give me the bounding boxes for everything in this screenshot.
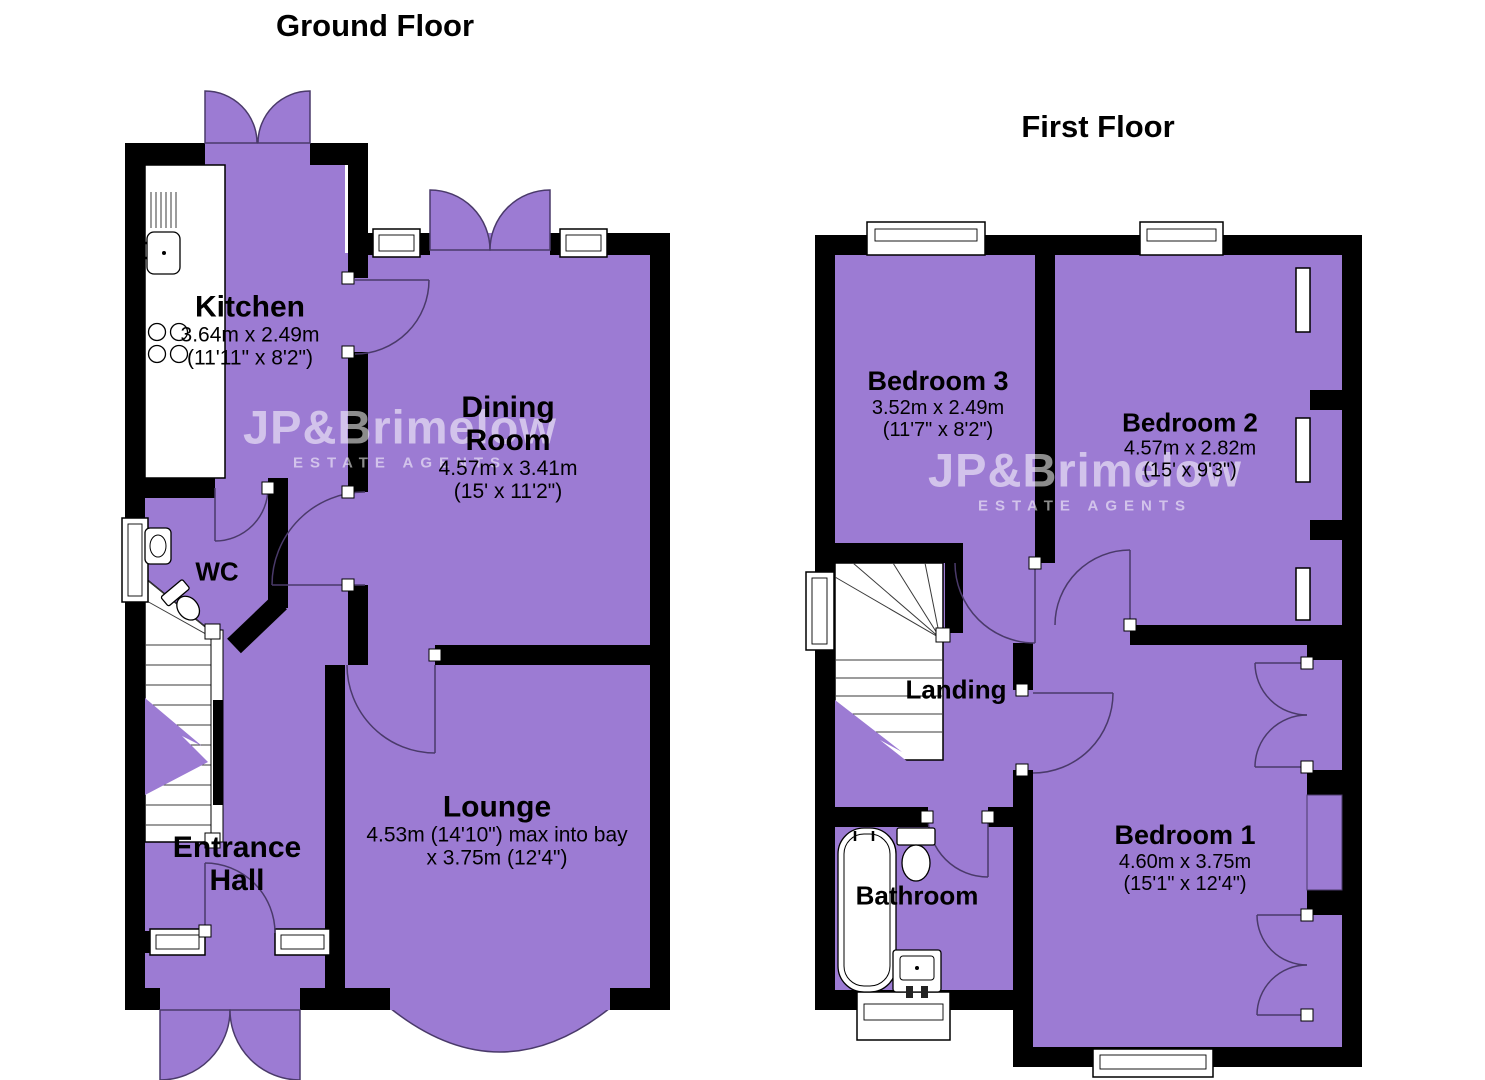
bathroom-label: Bathroom [856, 882, 979, 911]
bedroom2-name: Bedroom 2 [1122, 409, 1258, 438]
bedroom2-label: Bedroom 2 4.57m x 2.82m (15' x 9'3") [1122, 409, 1258, 482]
bedroom3-name: Bedroom 3 [867, 367, 1008, 397]
dining-room-name-line1: Dining [439, 391, 578, 424]
floorplan-drawing [0, 0, 1485, 1080]
dining-room-name-line2: Room [439, 424, 578, 457]
bedroom1-dims-metric: 4.60m x 3.75m [1114, 851, 1255, 873]
dining-room-dims-imperial: (15' x 11'2") [439, 480, 578, 503]
entrance-hall-line1: Entrance [173, 831, 301, 864]
gf-bay-window [390, 1008, 610, 1052]
lounge-name: Lounge [366, 790, 627, 823]
ff-landing-window [806, 572, 834, 650]
bedroom1-name: Bedroom 1 [1114, 821, 1255, 851]
landing-label: Landing [905, 676, 1006, 705]
gf-dining-double-door [430, 190, 550, 250]
kitchen-dims-imperial: (11'11" x 8'2") [181, 347, 320, 370]
ff-basin-icon [893, 950, 941, 998]
kitchen-dims-metric: 3.64m x 2.49m [181, 323, 320, 346]
ff-bathroom-window [857, 992, 950, 1040]
ff-chimney-recess [1307, 795, 1342, 890]
kitchen-label: Kitchen 3.64m x 2.49m (11'11" x 8'2") [181, 290, 320, 369]
entrance-hall-label: Entrance Hall [173, 831, 301, 897]
bedroom2-dims-imperial: (15' x 9'3") [1122, 459, 1258, 481]
bedroom1-label: Bedroom 1 4.60m x 3.75m (15'1" x 12'4") [1114, 821, 1255, 895]
ff-bedroom2-window [1140, 222, 1223, 255]
dining-room-label: Dining Room 4.57m x 3.41m (15' x 11'2") [439, 391, 578, 503]
dining-room-dims-metric: 4.57m x 3.41m [439, 457, 578, 480]
gf-wc-window [122, 518, 148, 602]
lounge-dims-metric: 4.53m (14'10") max into bay [366, 823, 627, 846]
lounge-dims-imperial: x 3.75m (12'4") [366, 847, 627, 870]
lounge-label: Lounge 4.53m (14'10") max into bay x 3.7… [366, 790, 627, 869]
bedroom1-dims-imperial: (15'1" x 12'4") [1114, 873, 1255, 895]
first-floor-title: First Floor [1021, 110, 1174, 144]
bedroom3-label: Bedroom 3 3.52m x 2.49m (11'7" x 8'2") [867, 367, 1008, 441]
gf-dining-window-right [560, 229, 607, 257]
wc-label: WC [195, 558, 238, 587]
kitchen-name: Kitchen [181, 290, 320, 323]
gf-hall-window-right [275, 929, 330, 955]
bedroom3-dims-metric: 3.52m x 2.49m [867, 397, 1008, 419]
ground-floor-title: Ground Floor [276, 9, 474, 43]
bedroom3-dims-imperial: (11'7" x 8'2") [867, 419, 1008, 441]
ff-stairs [835, 563, 943, 763]
gf-kitchen-double-door [205, 91, 310, 143]
entrance-hall-line2: Hall [173, 864, 301, 897]
gf-hall-window-left [150, 929, 205, 955]
first-floor-plan [806, 222, 1362, 1077]
ff-bedroom3-window [867, 222, 985, 255]
gf-wc-basin-icon [145, 528, 171, 564]
floorplan-canvas: JP&Brimelow ESTATE AGENTS JP&Brimelow ES… [0, 0, 1485, 1080]
bedroom2-dims-metric: 4.57m x 2.82m [1122, 437, 1258, 459]
gf-dining-window-left [373, 229, 420, 257]
gf-front-double-door [160, 1010, 300, 1080]
watermark-first-tagline: ESTATE AGENTS [978, 498, 1192, 515]
ff-bedroom1-window [1093, 1049, 1213, 1077]
